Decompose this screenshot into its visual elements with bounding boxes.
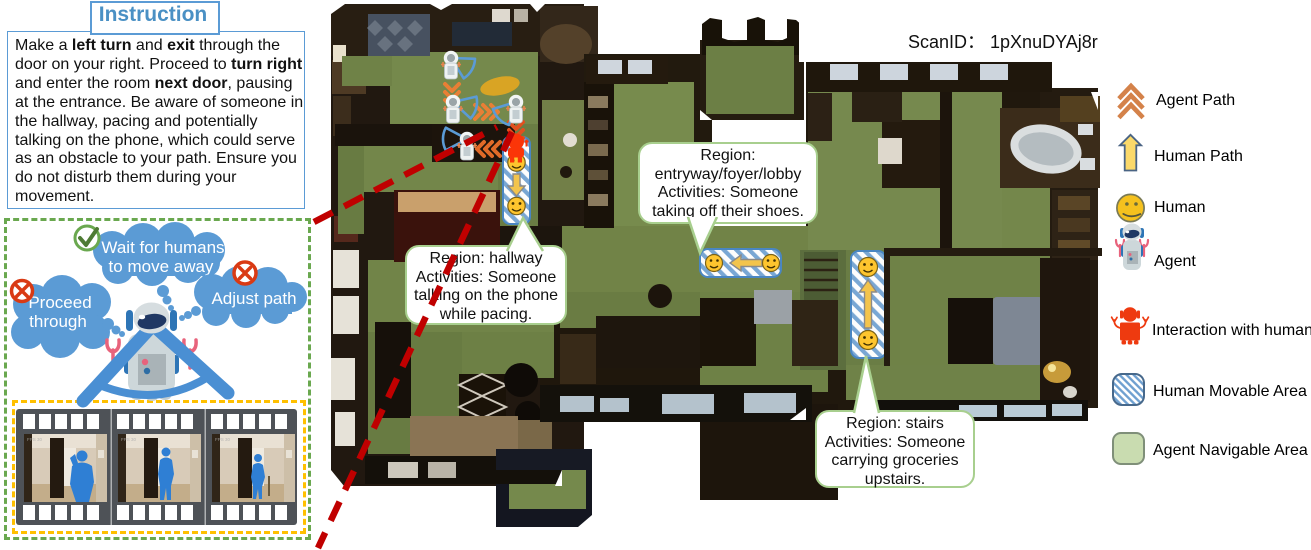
svg-text:FPS 30: FPS 30 [121,437,137,442]
svg-text:FPS 30: FPS 30 [27,437,43,442]
svg-text:through: through [29,312,87,331]
svg-text:Proceed: Proceed [28,293,91,312]
svg-text:Adjust path: Adjust path [211,289,296,308]
svg-text:to move away: to move away [109,257,214,276]
svg-text:FPS 30: FPS 30 [215,437,231,442]
svg-text:Wait for humans: Wait for humans [101,238,224,257]
